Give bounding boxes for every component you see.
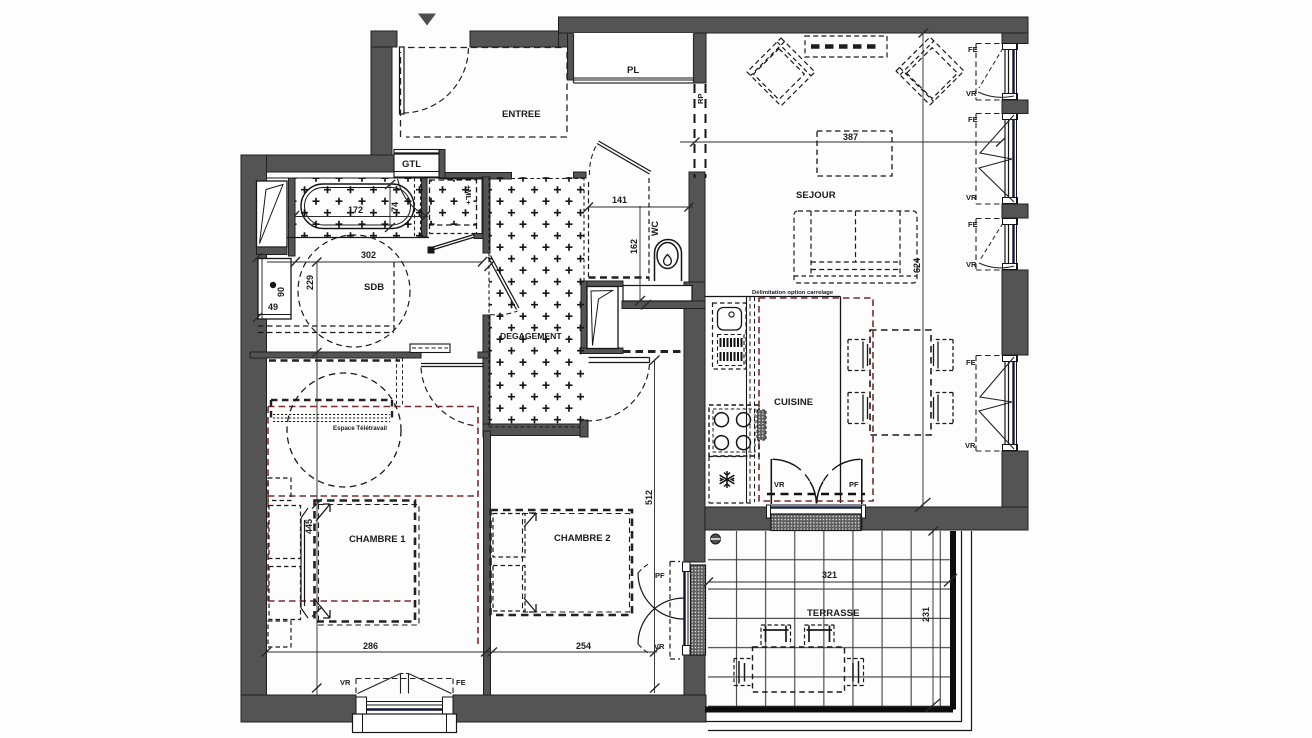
svg-text:FE: FE (968, 220, 978, 229)
svg-text:WC: WC (650, 221, 660, 236)
svg-text:VR: VR (966, 89, 977, 98)
svg-text:FE: FE (966, 358, 976, 367)
svg-text:Délimitation option carrelage: Délimitation option carrelage (752, 290, 834, 296)
svg-text:PL: PL (627, 65, 639, 76)
svg-text:FE: FE (968, 115, 978, 124)
svg-text:VR: VR (654, 642, 665, 651)
svg-text:VR: VR (774, 480, 785, 489)
svg-text:445: 445 (304, 519, 314, 534)
svg-text:172: 172 (348, 205, 363, 215)
svg-text:TERRASSE: TERRASSE (807, 608, 860, 619)
svg-text:141: 141 (612, 195, 627, 205)
svg-text:387: 387 (843, 132, 858, 142)
svg-text:CHAMBRE 2: CHAMBRE 2 (554, 533, 610, 544)
svg-text:VR: VR (966, 260, 977, 269)
svg-text:231: 231 (921, 607, 931, 622)
svg-text:FE: FE (456, 678, 466, 687)
svg-text:+ML+: +ML+ (464, 185, 473, 205)
svg-text:286: 286 (363, 641, 378, 651)
svg-text:FE: FE (968, 45, 978, 54)
svg-text:74: 74 (390, 202, 400, 212)
svg-text:CHAMBRE 1: CHAMBRE 1 (349, 534, 406, 545)
svg-text:512: 512 (644, 490, 654, 505)
svg-text:49: 49 (268, 302, 278, 312)
svg-text:VR: VR (965, 441, 976, 450)
svg-text:VR: VR (340, 678, 351, 687)
svg-text:SEJOUR: SEJOUR (796, 190, 836, 201)
svg-text:DEGAGEMENT: DEGAGEMENT (500, 331, 562, 341)
svg-text:RP: RP (696, 94, 705, 104)
svg-text:ENTREE: ENTREE (502, 109, 541, 120)
svg-text:90: 90 (276, 287, 286, 297)
svg-text:254: 254 (576, 641, 591, 651)
svg-text:302: 302 (361, 250, 376, 260)
svg-text:GTL: GTL (402, 159, 421, 170)
svg-text:229: 229 (305, 275, 315, 290)
svg-text:VR: VR (966, 193, 977, 202)
svg-text:162: 162 (629, 239, 639, 254)
svg-text:321: 321 (822, 570, 837, 580)
svg-text:Espace Télétravail: Espace Télétravail (333, 425, 387, 432)
svg-text:CUISINE: CUISINE (774, 397, 813, 408)
svg-text:PF: PF (849, 480, 859, 489)
svg-text:PF: PF (655, 571, 665, 580)
svg-text:SDB: SDB (364, 282, 384, 293)
